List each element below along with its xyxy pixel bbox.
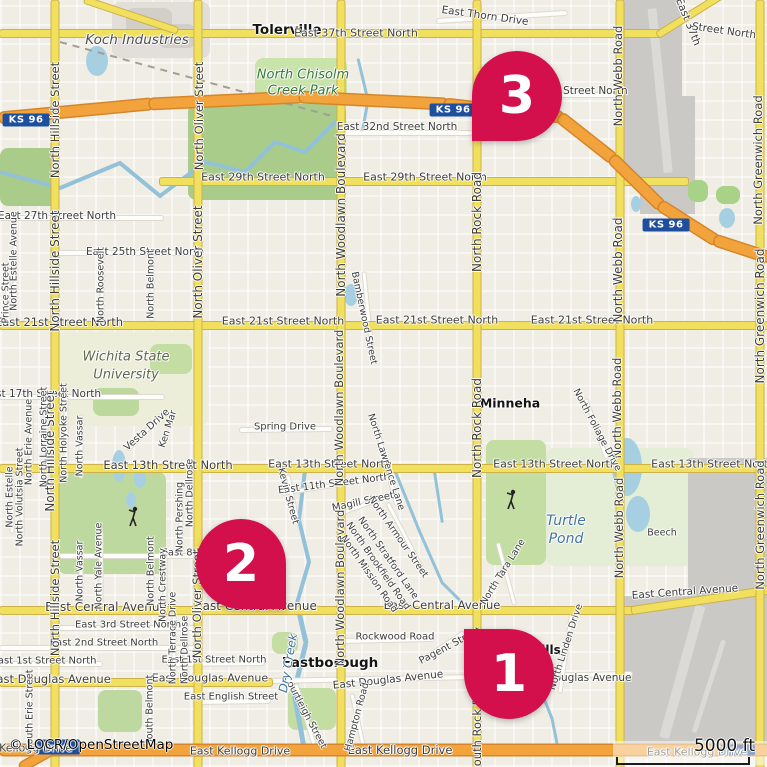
- street-label: East 21st Street North: [376, 314, 498, 327]
- park-area: [98, 690, 142, 732]
- highway-segment: [557, 113, 617, 163]
- street-label: East 21st Street North: [531, 314, 653, 327]
- street-label: East Kellogg Drive: [348, 743, 453, 757]
- route-shield-ks96: KS 96: [643, 219, 690, 232]
- street-label: North Webb Road: [611, 217, 625, 322]
- street-label: North Webb Road: [611, 26, 625, 127]
- street-label: North Woodlawn Boulevard: [333, 510, 347, 667]
- creek-segment: [433, 468, 444, 522]
- creek-segment: [119, 161, 163, 198]
- street-label: North Greenwich Road: [753, 249, 767, 384]
- street-label: North Hillside Street: [48, 210, 62, 331]
- street-label: East 29th Street North: [201, 171, 325, 184]
- street-label: North Oliver Street: [192, 62, 206, 170]
- street-label: North Yale Avenue: [94, 523, 105, 610]
- area-label: University: [93, 368, 159, 383]
- map-marker-3[interactable]: 3: [472, 51, 562, 141]
- street-label: North Pershing: [175, 482, 186, 552]
- area-label: Turtle: [546, 513, 586, 529]
- street-label: East 1st Street North: [0, 656, 96, 667]
- marker-number: 2: [223, 538, 259, 590]
- marker-number: 3: [499, 70, 535, 122]
- street-label: East Kellogg Drive: [190, 745, 290, 758]
- street-label: North Hillside Street: [48, 62, 62, 178]
- map-marker-2[interactable]: 2: [196, 519, 286, 609]
- street-label: North Belmont: [146, 536, 157, 605]
- street-label: East 13th Street North: [103, 458, 232, 472]
- street-label: East Douglas Avenue: [0, 672, 111, 686]
- sports-pitch: [716, 186, 740, 204]
- street-label: North Roosevelt: [96, 247, 107, 323]
- street-label: North Webb Road: [610, 358, 624, 459]
- golfer-icon: [126, 506, 142, 528]
- street-label: North Vassar: [75, 541, 86, 602]
- creek-segment: [297, 520, 311, 565]
- scale-line: [616, 757, 750, 765]
- area-label: North Chisolm: [257, 68, 349, 83]
- town-label: Minneha: [480, 396, 540, 411]
- street-label: North Dellrose: [180, 616, 191, 684]
- street-label: Rockwood Road: [356, 632, 435, 643]
- street-label: East 32nd Street North: [337, 121, 458, 133]
- water-pond: [719, 208, 735, 228]
- street-label: North Rock Road: [470, 172, 484, 272]
- golfer-icon: [504, 489, 520, 511]
- street-label: North Dellrose: [185, 459, 196, 527]
- street-label: North Belmont: [146, 249, 157, 318]
- town-label: Eastborough: [282, 655, 379, 671]
- water-pond: [631, 196, 641, 212]
- sports-pitch: [688, 180, 708, 202]
- street-label: North Hillside Street: [48, 540, 62, 656]
- street-label: North Lorraine Street: [39, 387, 50, 487]
- scale-bar: 5000 ft: [607, 736, 757, 765]
- area-label: Wichita State: [82, 350, 169, 365]
- street-label: East 13th Street North: [268, 458, 392, 471]
- route-shield-ks96: KS 96: [430, 104, 477, 117]
- street-label: East 29th Street North: [363, 171, 487, 184]
- street-label: North Rock Road: [470, 378, 484, 478]
- street-label: North Woodlawn Boulevard: [334, 133, 348, 296]
- street-label: East 21st Street North: [222, 315, 344, 328]
- area-label: Creek Park: [268, 84, 339, 99]
- street-label: North Greenwich Road: [753, 460, 767, 589]
- street-label: North Holyoke Street: [59, 383, 70, 483]
- street-label: North Estelle Avenue: [9, 211, 20, 311]
- street-label: North Terrace Drive: [168, 592, 179, 685]
- route-shield-ks96: KS 96: [3, 114, 50, 127]
- area-label: Koch Industries: [85, 32, 189, 48]
- scale-label: 5000 ft: [607, 736, 757, 756]
- street-label: East 13th Street North: [651, 458, 767, 471]
- street-label: Beech: [647, 528, 676, 539]
- street-label: East 37th Street North: [294, 27, 418, 40]
- area-label: Pond: [549, 531, 584, 547]
- street-label: East Douglas Avenue: [332, 668, 444, 692]
- street-label: North Oliver Street: [191, 205, 205, 318]
- map-attribution[interactable]: © LOCR/OpenStreetMap: [9, 737, 173, 753]
- street-label: East 13th Street North: [493, 458, 617, 471]
- street-label: North Erie Avenue: [24, 399, 35, 485]
- street-label: North Vassar: [75, 416, 86, 477]
- street-label: East English Street: [184, 692, 278, 703]
- creek-segment: [59, 160, 122, 189]
- street-label: North Greenwich Road: [751, 95, 765, 224]
- marker-number: 1: [491, 648, 527, 700]
- map-canvas[interactable]: KS 96KS 96KS 96TolervilleEast 37th Stree…: [0, 0, 767, 767]
- street-label: Spring Drive: [254, 422, 316, 433]
- street-label: South Belmont: [145, 675, 156, 745]
- street-label: East 2nd Street North: [50, 638, 159, 649]
- street-label: Hampton Road: [343, 681, 372, 752]
- street-label: North Webb Road: [612, 478, 626, 579]
- street-label: North Woodlawn Boulevard: [332, 330, 346, 487]
- map-marker-1[interactable]: 1: [464, 629, 554, 719]
- street-label: East Thorn Drive: [441, 4, 529, 28]
